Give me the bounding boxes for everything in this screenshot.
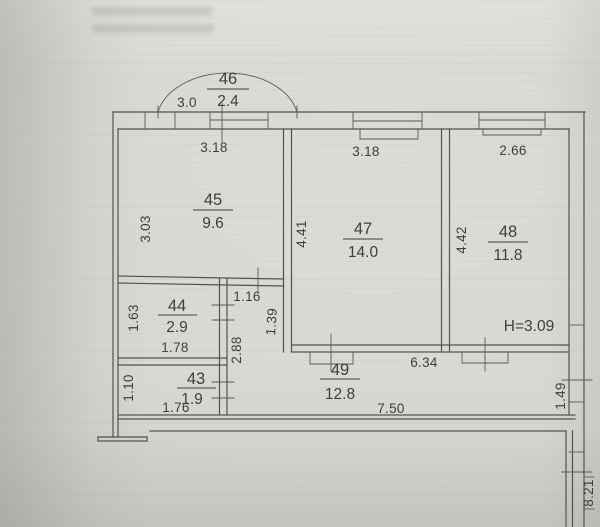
dim-niche-depth: 1.39 [263, 307, 280, 335]
room-48-number: 48 [499, 223, 517, 241]
floor-plan-drawing: 46 2.4 45 9.6 47 14.0 48 11.8 44 2.9 43 … [0, 0, 600, 527]
room-45-number: 45 [204, 191, 222, 209]
room-45-area: 9.6 [202, 215, 224, 232]
dim-room47-width: 3.18 [352, 144, 379, 159]
lower-unit-and-right-edge [150, 325, 594, 527]
balcony-area: 2.4 [217, 93, 239, 110]
dim-room48-depth: 4.42 [454, 226, 469, 253]
dim-hall-width-lower: 7.50 [377, 401, 404, 416]
windows [145, 112, 545, 139]
dim-room44-depth: 1.63 [126, 304, 141, 331]
dim-hall-depth: 2.88 [229, 336, 244, 363]
room-47-number: 47 [354, 220, 372, 238]
dim-room47-depth: 4.41 [294, 220, 309, 247]
room-47-area: 14.0 [348, 244, 379, 261]
dim-hall-width-upper: 6.34 [410, 355, 438, 370]
dim-room43-depth: 1.10 [121, 374, 136, 401]
room-49-number: 49 [331, 361, 349, 379]
ceiling-height-note: H=3.09 [504, 318, 554, 335]
room-44-number: 44 [168, 297, 186, 315]
floor-plan-scan: 46 2.4 45 9.6 47 14.0 48 11.8 44 2.9 43 … [0, 0, 600, 527]
room-49-area: 12.8 [325, 386, 355, 403]
dimension-labels: 3.0 3.18 3.18 2.66 3.03 4.41 4.42 1.63 1… [121, 95, 596, 507]
dim-right-offset: 1.49 [553, 382, 568, 409]
dim-niche-width: 1.16 [233, 289, 260, 304]
dim-building-depth: 8.21 [581, 479, 596, 506]
dim-room45-width: 3.18 [200, 140, 227, 155]
room-43-number: 43 [187, 370, 205, 388]
dim-room45-depth: 3.03 [138, 215, 153, 242]
room-48-area: 11.8 [493, 247, 522, 264]
dim-room48-width: 2.66 [499, 143, 526, 158]
balcony-number: 46 [219, 70, 237, 88]
dim-balcony-width: 3.0 [177, 95, 197, 110]
dim-room44-width: 1.78 [161, 340, 188, 355]
room-44-area: 2.9 [166, 319, 188, 336]
dim-room43-width: 1.76 [162, 400, 189, 415]
